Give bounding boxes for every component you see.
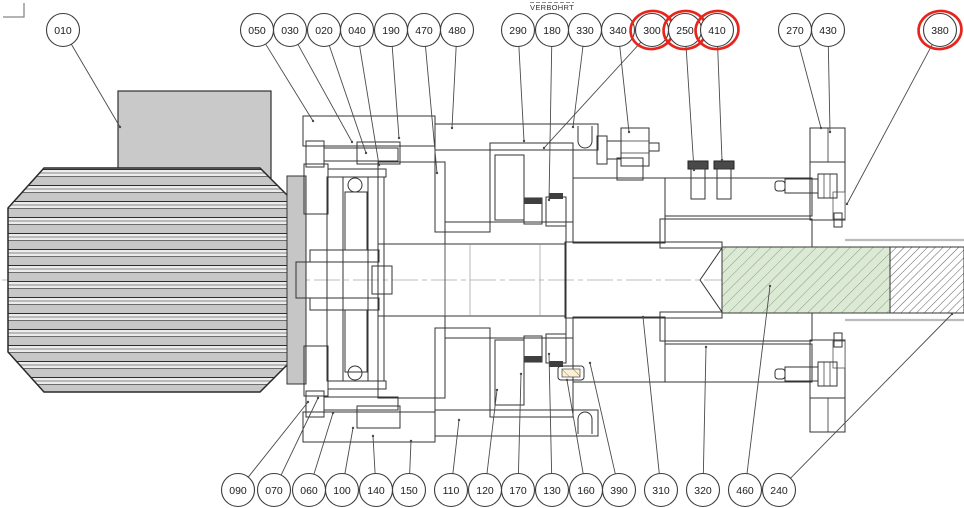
balloon-number-130: 130 xyxy=(543,485,561,497)
leader-dot-070 xyxy=(317,397,319,399)
balloon-number-330: 330 xyxy=(576,25,594,37)
balloon-number-410: 410 xyxy=(708,25,726,37)
balloon-170: 170 xyxy=(502,373,535,507)
leader-dot-130 xyxy=(548,353,550,355)
verbohrt-annotation: VERBOHRT xyxy=(530,3,574,13)
frame-corner-mark xyxy=(3,3,24,17)
leader-line-240 xyxy=(791,314,952,478)
sleeve-band-bottom-right xyxy=(665,344,812,382)
balloon-120: 120 xyxy=(469,389,502,507)
balloon-number-430: 430 xyxy=(819,25,837,37)
balloon-160: 160 xyxy=(566,379,603,507)
leader-line-110 xyxy=(453,420,459,474)
bell-housing xyxy=(303,116,435,442)
balloon-number-340: 340 xyxy=(609,25,627,37)
leader-line-250 xyxy=(686,46,694,170)
leader-dot-110 xyxy=(458,419,460,421)
leader-line-010 xyxy=(71,44,120,127)
leader-dot-170 xyxy=(520,373,522,375)
grub-screw-bottom xyxy=(558,366,584,380)
leader-line-060 xyxy=(314,413,333,474)
balloon-number-010: 010 xyxy=(54,25,72,37)
bell-housing-wall-bottom xyxy=(304,346,328,396)
balloon-110: 110 xyxy=(435,419,468,507)
leader-line-130 xyxy=(549,354,552,474)
leader-dot-410 xyxy=(721,159,723,161)
flange-top-plain xyxy=(810,128,845,162)
brake-coil-bottom xyxy=(357,406,400,428)
leader-line-430 xyxy=(828,46,830,132)
balloon-number-310: 310 xyxy=(652,485,670,497)
leader-dot-020 xyxy=(365,152,367,154)
brake-disc xyxy=(310,192,379,372)
spline-strip-bottom xyxy=(328,381,386,389)
leader-dot-320 xyxy=(705,346,707,348)
disc-hub-bottom xyxy=(310,298,379,310)
leader-line-160 xyxy=(567,380,583,474)
leader-line-170 xyxy=(518,374,521,474)
leader-line-120 xyxy=(487,390,497,474)
set-screw-2 xyxy=(714,161,734,199)
spring-ball-top xyxy=(348,178,362,192)
leader-dot-050 xyxy=(312,120,314,122)
balloon-290: 290 xyxy=(502,14,535,143)
balloon-number-140: 140 xyxy=(367,485,385,497)
balloon-number-390: 390 xyxy=(610,485,628,497)
balloon-380: 380 xyxy=(846,8,964,205)
verbohrt-label: VERBOHRT xyxy=(530,3,574,12)
leader-line-030 xyxy=(298,44,352,142)
leader-line-340 xyxy=(620,46,629,132)
balloon-150: 150 xyxy=(393,440,426,507)
leader-line-310 xyxy=(643,317,659,474)
balloon-number-270: 270 xyxy=(786,25,804,37)
balloon-430: 430 xyxy=(812,14,845,134)
leader-dot-160 xyxy=(566,379,568,381)
leader-dot-430 xyxy=(829,131,831,133)
leader-dot-010 xyxy=(119,126,121,128)
set-screw-1 xyxy=(688,161,708,199)
balloon-330: 330 xyxy=(569,14,602,129)
balloon-010: 010 xyxy=(47,14,122,129)
leader-dot-480 xyxy=(451,127,453,129)
housing-bolt-top xyxy=(306,141,398,167)
leader-dot-030 xyxy=(351,141,353,143)
balloon-number-190: 190 xyxy=(382,25,400,37)
flange-bottom-plain xyxy=(810,398,845,432)
leader-line-020 xyxy=(329,46,366,153)
customer-shaft xyxy=(890,247,964,313)
leader-dot-380 xyxy=(846,203,848,205)
balloon-number-150: 150 xyxy=(400,485,418,497)
balloon-140: 140 xyxy=(360,435,393,507)
leader-dot-040 xyxy=(378,164,380,166)
balloon-number-050: 050 xyxy=(248,25,266,37)
vent-notch-bottom xyxy=(578,412,592,434)
leader-line-070 xyxy=(281,398,318,475)
leader-line-290 xyxy=(519,46,524,141)
leader-dot-460 xyxy=(769,285,771,287)
hollow-shaft-wall-top xyxy=(660,219,812,248)
leader-line-040 xyxy=(360,46,379,165)
bearing-top xyxy=(495,155,524,220)
balloon-100: 100 xyxy=(326,427,359,507)
leader-dot-140 xyxy=(372,435,374,437)
balloon-number-300: 300 xyxy=(643,25,661,37)
balloon-410: 410 xyxy=(693,8,741,161)
hollow-shaft-wall-bottom xyxy=(660,312,812,341)
spline-strip-top xyxy=(328,169,386,177)
balloon-240: 240 xyxy=(763,313,954,507)
balloon-480: 480 xyxy=(441,14,474,130)
brake-plate-left xyxy=(327,177,343,381)
balloon-number-170: 170 xyxy=(509,485,527,497)
disc-bottom xyxy=(345,310,367,372)
sleeve-band-top-left xyxy=(573,178,665,243)
balloon-number-020: 020 xyxy=(315,25,333,37)
leader-line-320 xyxy=(703,347,706,474)
balloon-number-460: 460 xyxy=(736,485,754,497)
leader-line-100 xyxy=(345,428,353,474)
disc-hub-top xyxy=(310,250,379,262)
leader-dot-240 xyxy=(951,313,953,315)
balloon-number-480: 480 xyxy=(448,25,466,37)
bell-housing-wall-top xyxy=(304,164,328,214)
hex-bolt xyxy=(597,128,659,166)
leader-line-180 xyxy=(549,46,552,200)
flange-spacer-top xyxy=(833,192,845,219)
leader-line-390 xyxy=(590,363,615,474)
sleeve-band-top-right xyxy=(665,178,812,216)
leader-dot-390 xyxy=(589,362,591,364)
leader-line-150 xyxy=(410,441,411,474)
balloon-number-250: 250 xyxy=(676,25,694,37)
balloon-number-180: 180 xyxy=(543,25,561,37)
coupling-hub xyxy=(357,142,566,428)
balloon-number-290: 290 xyxy=(509,25,527,37)
balloon-number-060: 060 xyxy=(300,485,318,497)
balloon-190: 190 xyxy=(375,14,408,140)
housing-bolt-bottom xyxy=(306,391,398,417)
plug-screw-bottom xyxy=(524,336,542,362)
hub-flange-top xyxy=(445,222,566,244)
leader-line-380 xyxy=(847,45,932,204)
balloon-number-040: 040 xyxy=(348,25,366,37)
leader-dot-150 xyxy=(410,440,412,442)
balloon-180: 180 xyxy=(536,14,569,202)
leader-dot-250 xyxy=(693,169,695,171)
leader-dot-190 xyxy=(398,137,400,139)
inserted-shaft-inner xyxy=(722,247,890,313)
vent-notch-top xyxy=(578,126,592,148)
electric-motor xyxy=(8,91,306,392)
balloon-number-030: 030 xyxy=(281,25,299,37)
plug-screw-top xyxy=(524,198,542,224)
leader-line-050 xyxy=(266,44,313,121)
balloon-number-240: 240 xyxy=(770,485,788,497)
balloon-number-100: 100 xyxy=(333,485,351,497)
leader-dot-100 xyxy=(352,427,354,429)
flange-spacer-bottom xyxy=(833,341,845,368)
sleeve-band-bottom-left xyxy=(573,317,665,382)
balloon-number-470: 470 xyxy=(415,25,433,37)
leader-dot-310 xyxy=(642,316,644,318)
balloon-040: 040 xyxy=(341,14,381,167)
balloon-number-380: 380 xyxy=(931,25,949,37)
leader-line-470 xyxy=(425,46,437,173)
leader-dot-290 xyxy=(523,140,525,142)
leader-dot-120 xyxy=(496,389,498,391)
leader-dot-180 xyxy=(548,199,550,201)
leader-line-090 xyxy=(248,402,308,477)
leader-line-460 xyxy=(747,286,770,474)
assembly-drawing: VERBOHRT 0100500300200401904704802901803… xyxy=(0,0,964,508)
balloon-number-070: 070 xyxy=(265,485,283,497)
balloon-number-120: 120 xyxy=(476,485,494,497)
disc-top xyxy=(345,192,367,250)
leader-dot-090 xyxy=(307,401,309,403)
leader-dot-470 xyxy=(436,172,438,174)
balloon-number-160: 160 xyxy=(577,485,595,497)
spring-ball-bottom xyxy=(348,366,362,380)
leader-line-190 xyxy=(392,46,399,138)
leader-dot-060 xyxy=(332,412,334,414)
balloon-number-090: 090 xyxy=(229,485,247,497)
leader-dot-340 xyxy=(628,131,630,133)
balloon-number-320: 320 xyxy=(694,485,712,497)
leader-dot-270 xyxy=(820,127,822,129)
balloon-320: 320 xyxy=(687,346,720,507)
hollow-shaft xyxy=(565,213,964,347)
balloon-460: 460 xyxy=(729,285,772,507)
balloon-number-110: 110 xyxy=(443,485,460,497)
gearbox-bottom-band xyxy=(435,410,598,436)
leader-line-410 xyxy=(718,46,722,160)
leader-line-480 xyxy=(452,46,456,128)
brake-plate-right xyxy=(368,177,384,381)
leader-dot-330 xyxy=(572,126,574,128)
bearing-bottom xyxy=(495,340,524,405)
hub-flange-bottom xyxy=(445,316,566,338)
motor-finned-body xyxy=(8,168,296,392)
drawing-page: VERBOHRT 0100500300200401904704802901803… xyxy=(0,0,964,508)
leader-line-270 xyxy=(799,46,821,128)
leader-dot-300 xyxy=(543,147,545,149)
